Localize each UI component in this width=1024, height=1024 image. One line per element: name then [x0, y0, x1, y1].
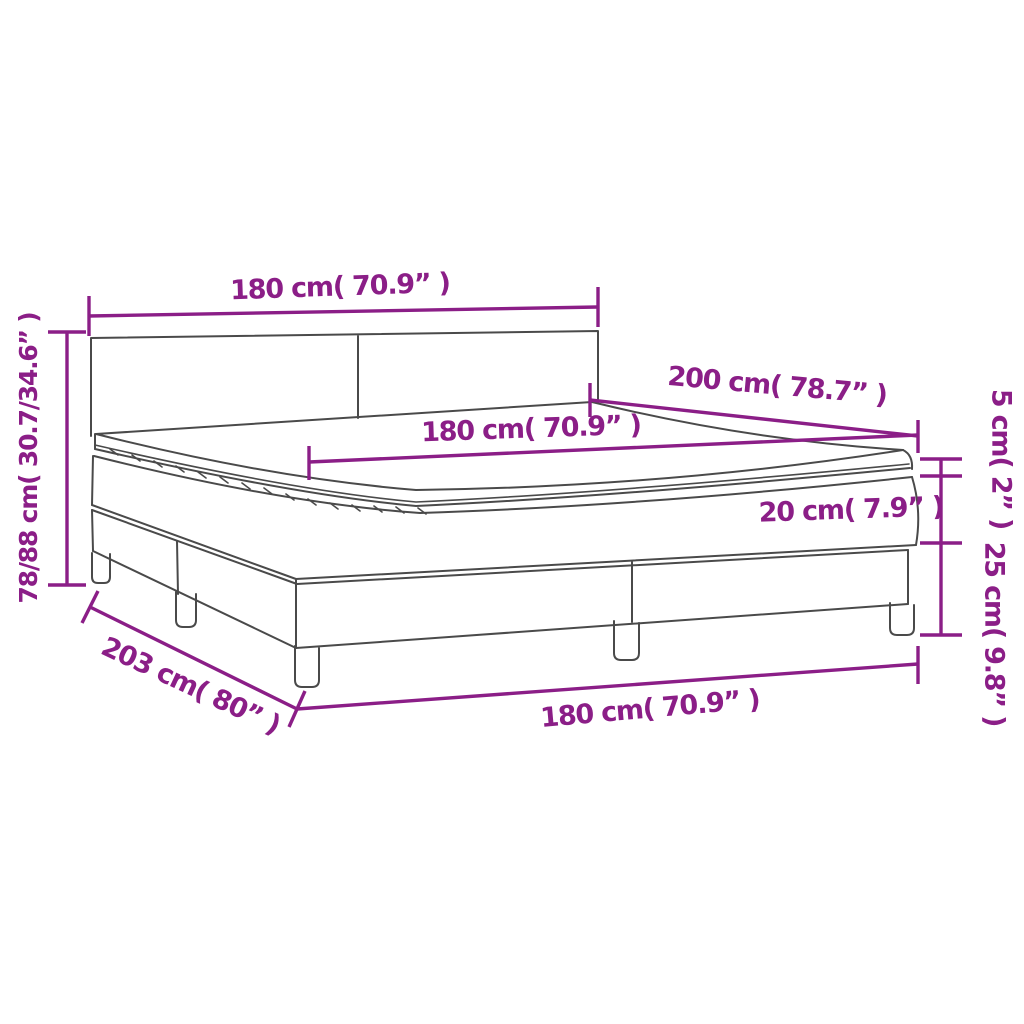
dim-label-bed-length: 200 cm( 78.7” ) [666, 361, 888, 411]
dim-label-mattress-width: 180 cm( 70.9” ) [421, 410, 642, 449]
dim-overall-height: 78/88 cm( 30.7/34.6” ) [14, 312, 86, 603]
dim-label-base-length: 203 cm( 80” ) [96, 631, 284, 741]
box-spring-base [92, 510, 908, 648]
dim-label-overall-height: 78/88 cm( 30.7/34.6” ) [14, 312, 43, 603]
base-left-cap [92, 510, 93, 551]
base-bottom-edge [93, 551, 908, 648]
dim-label-base-width: 180 cm( 70.9” ) [539, 684, 761, 734]
topper-end-cap [903, 450, 912, 469]
dim-right-heights: 5 cm( 2” ) 25 cm( 9.8” ) [920, 389, 1017, 726]
bed-dimension-diagram: 180 cm( 70.9” ) 78/88 cm( 30.7/34.6” ) 2… [0, 0, 1024, 1024]
dim-label-base-height: 25 cm( 9.8” ) [979, 542, 1010, 727]
dim-label-headboard-width: 180 cm( 70.9” ) [230, 268, 451, 307]
bed-leg-front-right [890, 603, 914, 635]
bed-leg-front-left [295, 646, 319, 687]
base-left-seam [177, 541, 178, 594]
dim-base-width: 180 cm( 70.9” ) [297, 646, 918, 734]
dim-label-topper-thickness: 5 cm( 2” ) [986, 389, 1017, 529]
dim-label-mattress-thickness: 20 cm( 7.9” ) [758, 491, 944, 528]
bed-leg-side-middle [176, 592, 196, 627]
bed-leg-front-middle [614, 621, 639, 660]
dim-line [89, 307, 598, 316]
dim-headboard-width: 180 cm( 70.9” ) [89, 268, 598, 336]
mattress-left-cap [92, 456, 93, 505]
diagram-canvas: 180 cm( 70.9” ) 78/88 cm( 30.7/34.6” ) 2… [0, 0, 1024, 1024]
dim-base-length: 203 cm( 80” ) [82, 591, 305, 741]
dim-tick [82, 591, 98, 623]
dim-mattress-thickness: 20 cm( 7.9” ) [758, 491, 944, 528]
dim-mattress-width: 180 cm( 70.9” ) [309, 410, 918, 480]
